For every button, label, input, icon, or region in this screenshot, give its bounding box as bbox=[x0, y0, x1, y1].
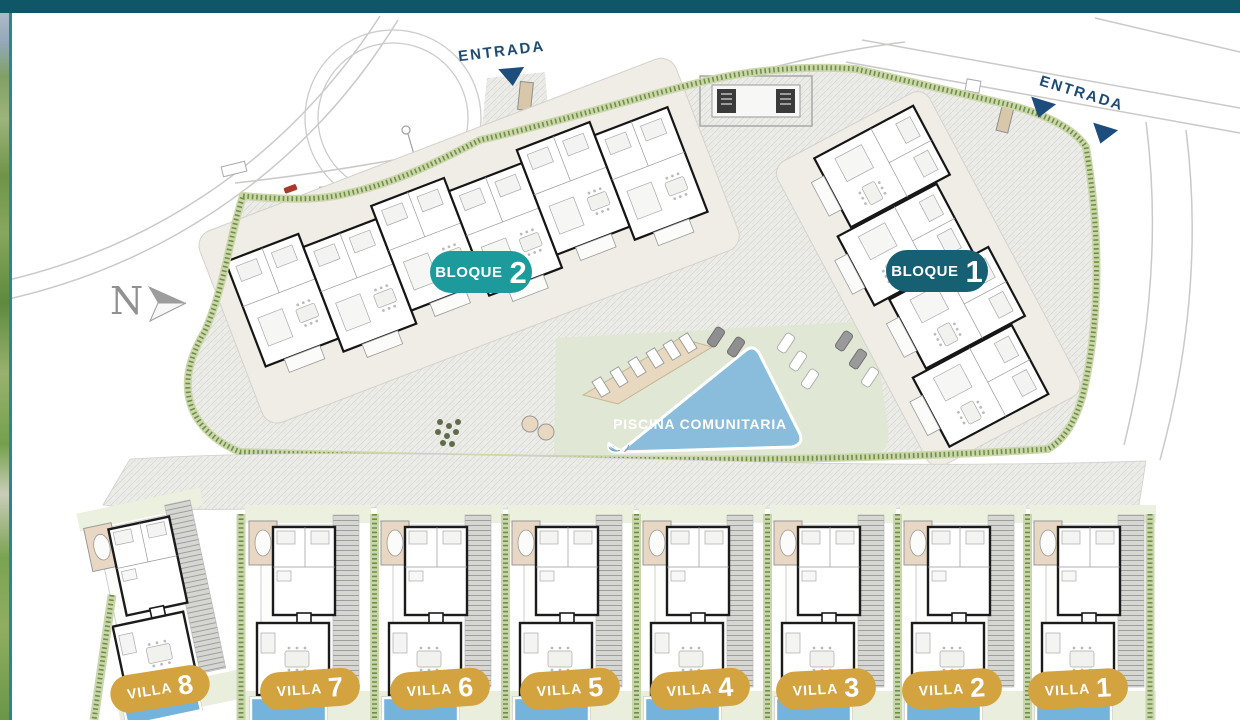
north-arrow-icon bbox=[148, 286, 186, 321]
left-photo-strip bbox=[0, 13, 9, 720]
villa-plot bbox=[508, 505, 634, 720]
villa-plot bbox=[245, 505, 371, 720]
villa-plot bbox=[377, 505, 503, 720]
bloque-2-word: BLOQUE bbox=[435, 265, 502, 280]
villa-plot bbox=[900, 505, 1026, 720]
communal-pool-label: PISCINA COMUNITARIA bbox=[578, 417, 822, 431]
bloque-2-label: BLOQUE 2 bbox=[430, 251, 532, 293]
bloque-1-label: BLOQUE 1 bbox=[886, 250, 988, 292]
road-band bbox=[103, 454, 1146, 510]
bloque-1-word: BLOQUE bbox=[891, 264, 958, 279]
top-bar bbox=[0, 0, 1240, 13]
entrance-pavilion bbox=[700, 76, 812, 126]
entrance-arrow-icon bbox=[498, 67, 525, 87]
site-plan-page: { "north": { "label": "N" }, "entrances"… bbox=[0, 0, 1240, 720]
red-car bbox=[283, 184, 297, 194]
north-label: N bbox=[110, 282, 143, 320]
villa-plot bbox=[1030, 505, 1156, 720]
villa-plot bbox=[639, 505, 765, 720]
villa-plot bbox=[770, 505, 896, 720]
left-accent-line bbox=[9, 13, 12, 720]
bloque-1-number: 1 bbox=[965, 256, 982, 287]
bloque-2-number: 2 bbox=[509, 257, 526, 288]
